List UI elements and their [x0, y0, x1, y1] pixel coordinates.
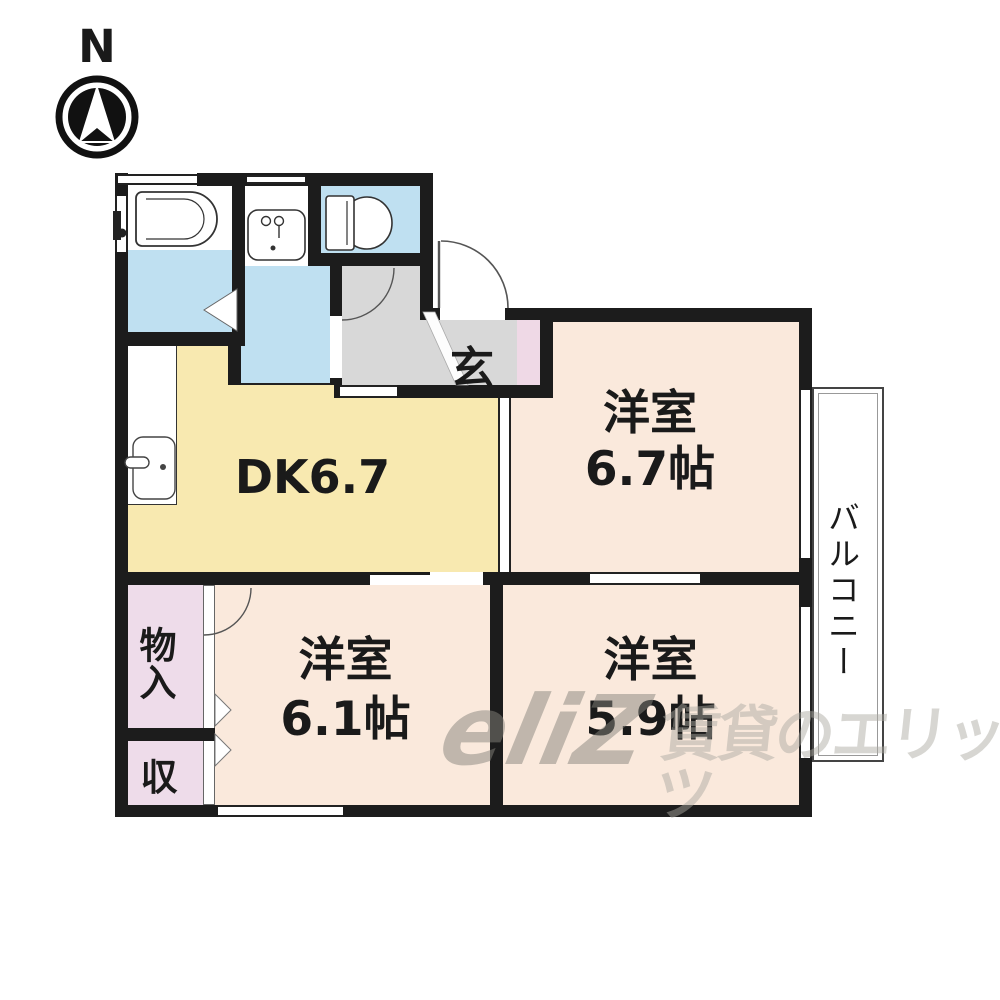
hallway-floor [342, 266, 427, 385]
compass-n-label: N [72, 20, 122, 73]
room-label-west2-size: 6.1帖 [218, 691, 473, 750]
west1-west3-sliding-opening [590, 572, 700, 585]
entrance-door-arc [441, 241, 508, 308]
washroom-upper [245, 186, 308, 266]
toilet-room-floor [321, 186, 420, 253]
wall-porch-bottom-left [420, 308, 440, 320]
wall-dk-bottom [115, 572, 370, 585]
room-label-west3: 洋室 5.9帖 [518, 632, 783, 750]
wall-closet-divider [115, 728, 215, 741]
wall-dk-bottom-halfline [370, 572, 430, 575]
room-label-shu: 収 [138, 747, 180, 801]
bathroom-tub-zone [128, 186, 232, 250]
window-left-bath [115, 196, 128, 252]
window-balcony-west1 [799, 390, 812, 558]
window-bottom-west2 [218, 805, 343, 817]
wall-toilet-right [420, 186, 433, 320]
wall-bath-bottom [115, 332, 245, 346]
room-label-west3-size: 5.9帖 [518, 691, 783, 750]
room-label-west1-name: 洋室 [530, 386, 770, 442]
window-balcony-west3 [799, 607, 812, 758]
room-label-west1-size: 6.7帖 [530, 442, 770, 498]
room-label-entrance: 玄 [427, 332, 517, 396]
hall-dk-door-opening [340, 385, 397, 398]
window-top-bath [118, 174, 197, 185]
wall-washroom-right [308, 186, 321, 266]
closet-sliding-door [203, 585, 215, 805]
compass-icon [59, 79, 135, 155]
wall-west1-top [540, 308, 812, 322]
washroom-hall-door-opening [330, 316, 342, 378]
washroom-floor [241, 266, 330, 385]
wall-bath-right [232, 186, 245, 332]
kitchen-counter [128, 345, 177, 505]
room-label-balcony: バルコニー [827, 468, 865, 713]
wall-west2-west3 [490, 572, 503, 817]
wall-top [197, 173, 433, 186]
room-label-west1: 洋室 6.7帖 [530, 386, 770, 499]
room-label-west2: 洋室 6.1帖 [218, 632, 473, 750]
window-top-washroom [247, 175, 305, 184]
floor-plan: N DK6.7 洋室 6.7帖 洋室 6.1帖 洋室 5.9帖 玄 物入 収 バ… [0, 0, 1000, 1000]
wall-toilet-bottom [321, 253, 427, 266]
room-label-west3-name: 洋室 [518, 632, 783, 691]
dk-west1-sliding-door [498, 398, 511, 572]
wall-dk-column [228, 345, 241, 385]
room-label-dk: DK6.7 [185, 450, 440, 504]
entrance-shoe-cabinet [517, 320, 540, 385]
room-label-monoire: 物入 [139, 602, 181, 724]
room-label-west2-name: 洋室 [218, 632, 473, 691]
wall-left [115, 173, 128, 817]
